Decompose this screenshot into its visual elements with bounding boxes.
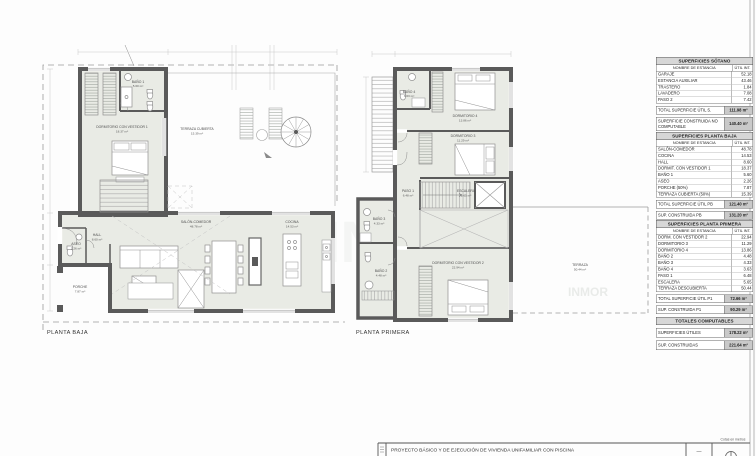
room-label: PORCHE [73, 285, 88, 289]
total-value-badge: 111.98 m² [724, 106, 753, 114]
col-value-header: ÚTIL INT. [733, 140, 753, 146]
table-row: TERRAZA CUBIERTA (50%)15.39 [657, 191, 753, 197]
spiral-staircase [281, 117, 311, 147]
room-area: 4.33 m² [374, 222, 385, 226]
staircase-baja [100, 180, 148, 212]
furniture-baja [67, 73, 331, 308]
total-value-badge: 90.29 m² [724, 306, 753, 314]
table-totales-computables: TOTALES COMPUTABLES SUPERFICIES ÚTILES 1… [656, 317, 753, 350]
total-value-badge: 121.40 m² [724, 201, 753, 209]
plan-title-baja: PLANTA BAJA [47, 330, 88, 336]
washbasin [365, 281, 373, 289]
room-label: TERRAZA CUBIERTA [180, 127, 214, 131]
table-superficies-sotano: SUPERFICIES SÓTANO NOMBRE DE ESTANCIA ÚT… [656, 57, 753, 131]
room-area: 22.94 m² [452, 266, 464, 270]
covered-terrace [168, 73, 335, 206]
table-extra-row: SUPERFICIE CONSTRUIDA NO COMPUTABLE 140.… [656, 117, 753, 131]
total-value-badge: 178.22 m² [724, 329, 753, 338]
bed-dorm4 [455, 73, 495, 110]
table-extra-row: SUP. CONSTRUIDA PB 131.20 m² [656, 211, 753, 220]
room-label: SALÓN-COMEDOR [181, 219, 212, 224]
col-value-header: ÚTIL INT. [733, 65, 753, 71]
room-area: 13.86 m² [459, 119, 471, 123]
room-area: 6.48 m² [403, 194, 414, 198]
room-label: DORMITORIO 4 [453, 114, 478, 118]
room-area: 8.60 m² [92, 238, 103, 242]
room-area: 15.39 m² [191, 132, 203, 136]
room-label: ASEO [71, 242, 81, 246]
exterior-staircase [372, 77, 393, 172]
room-label: PASO 1 [402, 189, 414, 193]
room-area: 5.60 m² [133, 84, 144, 88]
col-name-header: NOMBRE DE ESTANCIA [657, 65, 733, 71]
room-label: DORMITORIO CON VESTIDOR 2 [432, 261, 484, 265]
bed-dorm2 [448, 280, 488, 315]
table-total-row: TOTAL SUPERFICIE ÚTIL P1 72.66 m² [656, 295, 753, 304]
wardrobe [419, 133, 432, 164]
room-area: 3.63 m² [404, 94, 415, 98]
kitchen-counter [322, 240, 331, 292]
table-row: PASO 27.42 [657, 97, 753, 103]
bed-dorm3 [455, 144, 495, 175]
porch-columns [57, 266, 63, 312]
sun-lounger [269, 108, 282, 139]
shower-tray [412, 98, 425, 107]
room-area: 18.37 m² [116, 130, 128, 134]
shower-tray [360, 233, 371, 242]
total-value-badge: 221.64 m² [724, 341, 753, 350]
total-value-badge: 131.20 m² [724, 212, 753, 220]
room-area: 2.26 m² [71, 247, 82, 251]
washbasin [409, 74, 416, 81]
room-area: 5.65 m² [461, 194, 472, 198]
closet [85, 73, 98, 115]
table-total-row: SUPERFICIES ÚTILES 178.22 m² [656, 328, 753, 338]
washbasin [364, 209, 371, 216]
table-total-row: TOTAL SUPERFICIE ÚTIL PB 121.40 m² [656, 200, 753, 209]
col-name-header: NOMBRE DE ESTANCIA [657, 140, 733, 146]
table-title: SUPERFICIES PLANTA BAJA [656, 132, 753, 140]
table-total-row: TOTAL SUPERFICIE ÚTIL S. 111.98 m² [656, 106, 753, 115]
room-label: ESCALERA [457, 189, 476, 193]
fireplace-unit [249, 238, 261, 285]
sheet-index-marks [380, 447, 384, 452]
room-area: 7.87 m² [75, 290, 86, 294]
table-superficies-planta-primera: SUPERFICIES PLANTA PRIMERA NOMBRE DE EST… [656, 220, 753, 314]
sun-lounger [240, 108, 253, 139]
room-label: TERRAZA [572, 263, 589, 267]
plan-title-primera: PLANTA PRIMERA [356, 330, 410, 336]
table-total-row: SUP. CONSTRUIDAS 221.64 m² [656, 341, 753, 351]
floor-plans-drawing: INMO INMOR [0, 0, 756, 456]
room-label: HALL [93, 233, 102, 237]
room-area: 48.78 m² [190, 225, 202, 229]
table-extra-row: SUP. CONSTRUIDA P1 90.29 m² [656, 306, 753, 315]
kitchen-island [283, 234, 301, 286]
table-title: SUPERFICIES SÓTANO [656, 57, 753, 65]
col-name-header: NOMBRE DE ESTANCIA [657, 228, 733, 234]
table-title: SUPERFICIES PLANTA PRIMERA [656, 220, 753, 228]
room-label: DORMITORIO 3 [451, 134, 476, 138]
planta-baja-plan: DORMITORIO CON VESTIDOR 1 18.37 m² BAÑO … [43, 45, 345, 336]
washbasin [125, 74, 132, 81]
room-area: 50.44 m² [574, 268, 586, 272]
area-tables-column: SUPERFICIES SÓTANO NOMBRE DE ESTANCIA ÚT… [656, 57, 756, 456]
room-area: 4.48 m² [376, 274, 387, 278]
closet [103, 73, 116, 115]
total-value-badge: 72.66 m² [724, 295, 753, 303]
room-label: DORMITORIO CON VESTIDOR 1 [96, 125, 148, 129]
room-label: BAÑO 2 [375, 268, 388, 273]
drawing-sheet: INMO INMOR [0, 0, 756, 456]
table-row: TERRAZA DESCUBIERTA50.44 [657, 286, 753, 292]
room-area: 14.53 m² [286, 225, 298, 229]
wardrobe [419, 266, 432, 316]
washbasin [76, 234, 82, 240]
table-superficies-planta-baja: SUPERFICIES PLANTA BAJA NOMBRE DE ESTANC… [656, 132, 753, 220]
project-title: PROYECTO BÁSICO Y DE EJECUCIÓN DE VIVIEN… [391, 447, 575, 454]
total-value-badge: 140.40 m² [724, 117, 753, 130]
vent-grille [362, 291, 394, 300]
table-title: TOTALES COMPUTABLES [656, 317, 753, 325]
north-glyph [264, 152, 272, 158]
room-area: 11.29 m² [457, 139, 469, 143]
room-label: COCINA [285, 220, 299, 224]
closet [432, 72, 443, 112]
svg-text:INMOR: INMOR [568, 285, 608, 299]
terrace-table [257, 130, 268, 141]
room-label: BAÑO 3 [373, 216, 386, 221]
boundary-tick [125, 45, 134, 66]
col-value-header: ÚTIL INT. [733, 228, 753, 234]
